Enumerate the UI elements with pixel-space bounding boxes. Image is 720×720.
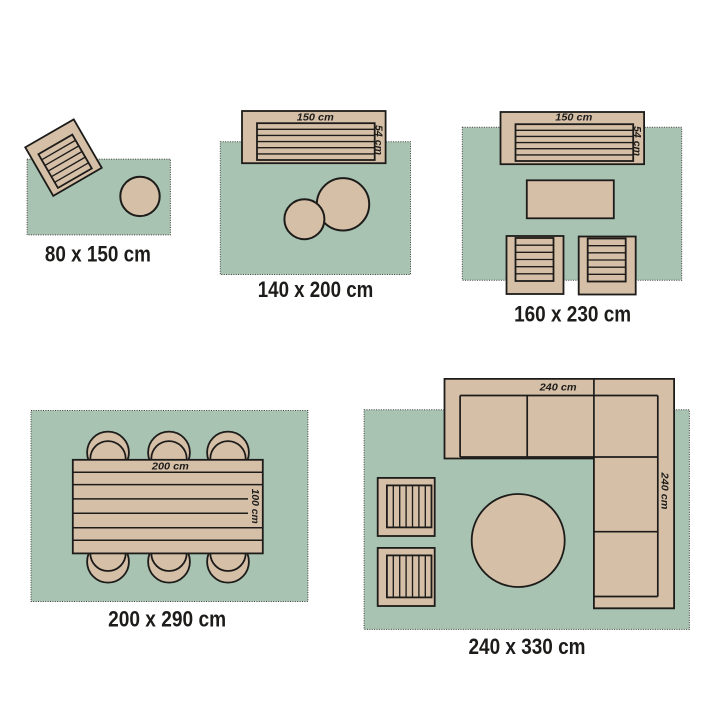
svg-text:200 x 290 cm: 200 x 290 cm <box>108 606 226 631</box>
svg-text:54 cm: 54 cm <box>631 126 643 156</box>
svg-text:150 cm: 150 cm <box>297 111 334 123</box>
svg-text:240 x 330 cm: 240 x 330 cm <box>469 634 586 659</box>
svg-text:240 cm: 240 cm <box>539 382 577 394</box>
svg-text:240 cm: 240 cm <box>659 471 671 509</box>
svg-text:160 x 230 cm: 160 x 230 cm <box>514 301 631 326</box>
svg-text:200 cm: 200 cm <box>151 461 189 473</box>
svg-text:100 cm: 100 cm <box>249 489 261 524</box>
svg-text:54 cm: 54 cm <box>373 125 385 155</box>
svg-text:140 x 200 cm: 140 x 200 cm <box>258 277 374 302</box>
svg-text:150 cm: 150 cm <box>555 112 592 124</box>
svg-text:80 x 150 cm: 80 x 150 cm <box>45 242 151 267</box>
